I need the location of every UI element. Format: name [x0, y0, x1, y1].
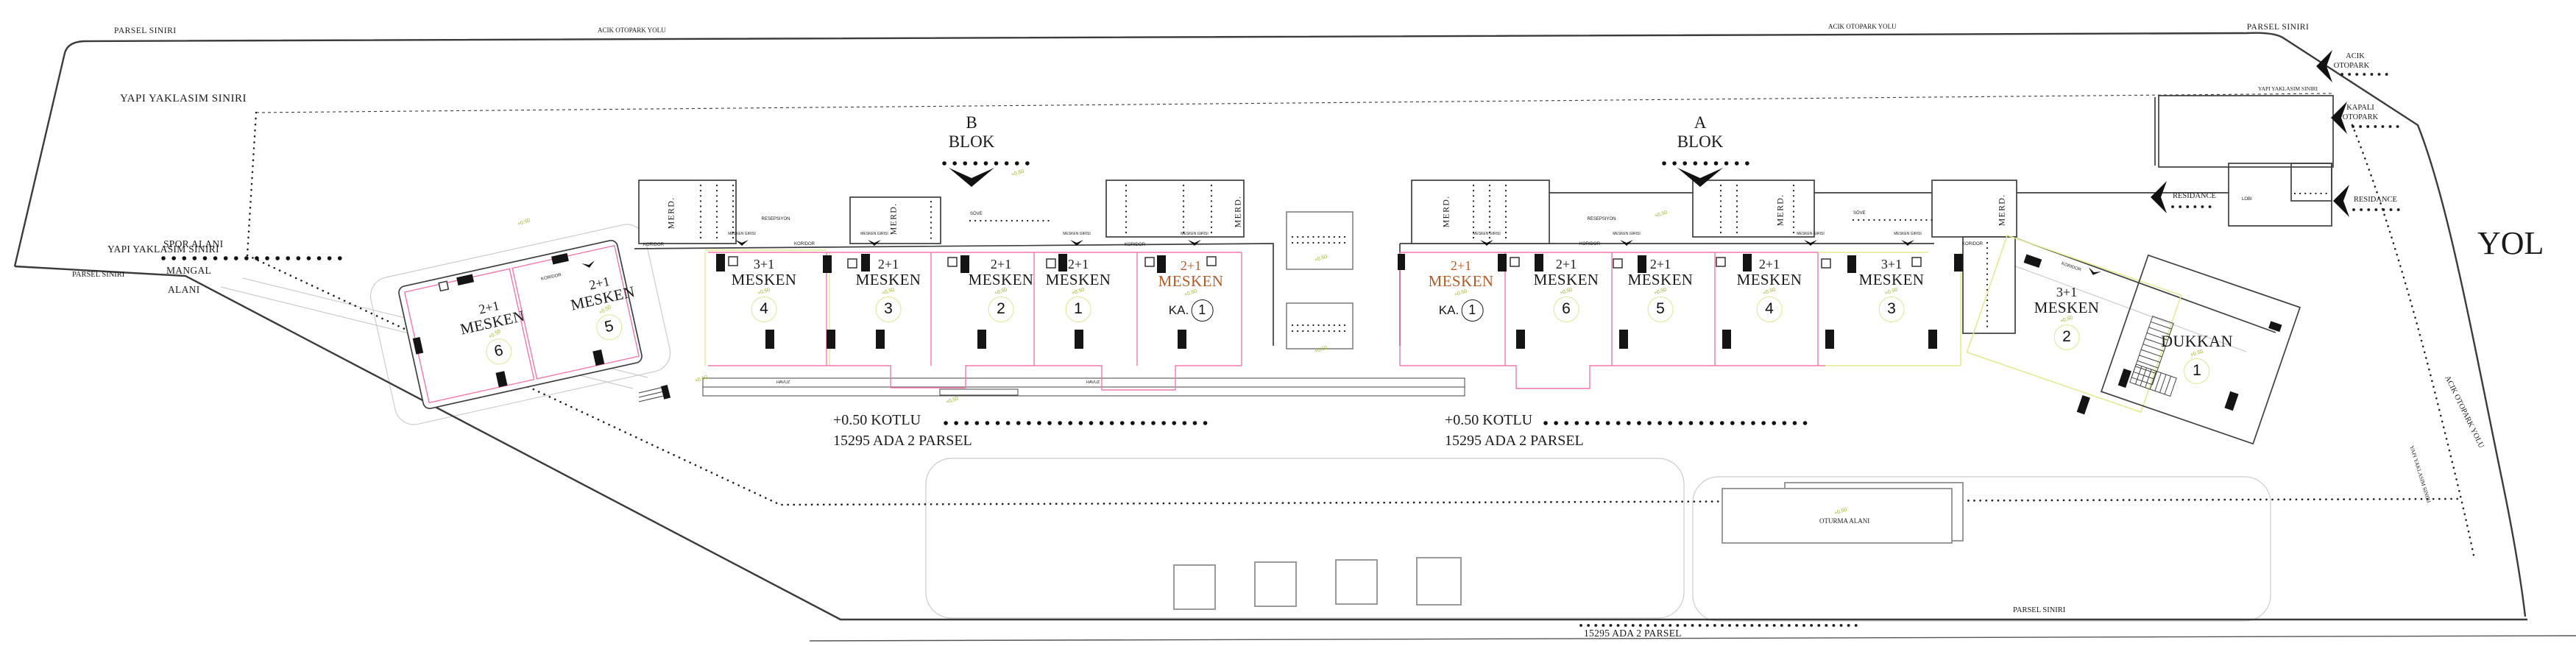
ka-prefix: KA.	[1169, 304, 1189, 317]
merd-label: MERD.	[1232, 196, 1243, 228]
kotlu-label-left: +0.50 KOTLU	[833, 412, 921, 429]
unit-number-circle: 2	[988, 297, 1014, 322]
unit-label-a2: 3+1 MESKEN +0.50 2	[2034, 285, 2100, 350]
a-blok-word: BLOK	[1677, 132, 1724, 152]
unit-type: 2+1	[856, 258, 921, 271]
resepsiyon-label: RESEPSIYON	[1587, 217, 1616, 221]
unit-number-circle: 3	[1879, 297, 1905, 322]
merd-label: MERD.	[665, 197, 676, 230]
unit-label-a5: 2+1 MESKEN +0.50 5	[1628, 258, 1694, 322]
unit-label-a4: 2+1 MESKEN +0.50 4	[1737, 258, 1802, 322]
unit-label-b2: 2+1 MESKEN +0.50 2	[969, 258, 1034, 322]
ka-prefix: KA.	[1439, 304, 1459, 317]
koridor-label: KORIDOR	[643, 243, 664, 247]
residance-label-right: RESIDANCE	[2354, 196, 2397, 204]
unit-type: 2+1	[969, 258, 1034, 271]
parsel-siniri-bottom-right: PARSEL SINIRI	[2013, 606, 2065, 614]
merd-label: MERD.	[888, 203, 899, 235]
acik-otopark-yolu-top-right: ACIK OTOPARK YOLU	[1828, 23, 1897, 30]
ada-parsel-label-right: 15295 ADA 2 PARSEL	[1445, 433, 1584, 450]
entrance-label: MESKEN GIRISI	[1063, 232, 1091, 236]
kapali-otopark-label-2: OTOPARK	[2343, 113, 2378, 121]
acik-otopark-label-1: ACIK	[2346, 52, 2365, 60]
court-planters	[1287, 212, 1353, 349]
spor-alani-label: SPOR ALANI	[163, 238, 223, 250]
unit-number-circle: 3	[876, 297, 902, 322]
merd-label: MERD.	[1440, 196, 1451, 228]
residance-label-left: RESIDANCE	[2173, 192, 2216, 200]
sove-label: SÖVE	[1853, 211, 1866, 216]
unit-number-circle: 2	[2054, 324, 2080, 350]
oturma-alani-label: OTURMA ALANI	[1819, 517, 1869, 525]
unit-label-a-ka1: 2+1 MESKEN +0.50 KA. 1	[1429, 259, 1494, 322]
top-right-buildings	[2155, 96, 2333, 226]
unit-label-b4: 3+1 MESKEN +0.50 4	[732, 258, 797, 322]
lobi-label: LOBI	[2242, 197, 2252, 202]
parsel-siniri-top-right: PARSEL SINIRI	[2247, 23, 2310, 32]
entrance-label: MESKEN GIRISI	[728, 232, 756, 236]
ada-parsel-label-bottom: 15295 ADA 2 PARSEL	[1584, 628, 1682, 639]
entrance-label: MESKEN GIRISI	[1613, 232, 1641, 236]
entrance-label: MESKEN GIRISI	[1181, 232, 1209, 236]
resepsiyon-label: RESEPSIYON	[761, 217, 790, 221]
unit-type: 3+1	[2034, 285, 2100, 299]
entrance-label: MESKEN GIRISI	[1473, 232, 1501, 236]
parsel-siniri-bottom-left: PARSEL SINIRI	[72, 271, 124, 279]
unit-number-circle: 1	[1191, 299, 1213, 322]
yapi-yaklasim-top-left: YAPI YAKLASIM SINIRI	[120, 93, 247, 105]
unit-label-a3: 3+1 MESKEN +0.50 3	[1859, 258, 1925, 322]
unit-number-circle: 6	[1554, 297, 1579, 322]
koridor-label: KORIDOR	[1579, 242, 1600, 246]
unit-number-circle: 1	[1066, 297, 1091, 322]
unit-type: 2+1	[1046, 258, 1111, 271]
a-blok-outline	[1400, 180, 2276, 346]
unit-type: 2+1	[1158, 259, 1224, 273]
ada-parsel-label-left: 15295 ADA 2 PARSEL	[833, 433, 972, 450]
yol-label: YOL	[2477, 224, 2544, 262]
unit-label-b6: 2+1 MESKEN +0.50 6	[456, 294, 534, 371]
koridor-label: KORIDOR	[1125, 243, 1145, 247]
entrance-label: MESKEN GIRISI	[1894, 232, 1922, 236]
unit-label-a6: 2+1 MESKEN +0.50 6	[1534, 258, 1599, 322]
unit-number-circle: 4	[751, 297, 777, 322]
entrance-label: MESKEN GIRISI	[860, 232, 888, 236]
site-plan-canvas: PARSEL SINIRI PARSEL SINIRI PARSEL SINIR…	[0, 0, 2576, 646]
unit-number-circle: 1	[1461, 299, 1483, 322]
unit-type: 3+1	[732, 258, 797, 271]
entrance-label: MESKEN GIRISI	[1797, 232, 1825, 236]
b-blok-word: BLOK	[949, 132, 995, 152]
unit-type: 2+1	[1534, 258, 1599, 271]
acik-otopark-yolu-top-left: ACIK OTOPARK YOLU	[598, 26, 666, 34]
unit-label-b-ka1: 2+1 MESKEN +0.50 KA. 1	[1158, 259, 1224, 322]
unit-number-circle: 4	[1757, 297, 1783, 322]
sove-label: SÖVE	[970, 212, 983, 216]
unit-type: 3+1	[1859, 258, 1925, 271]
site-plan-drawing	[0, 0, 2576, 646]
unit-type: 2+1	[1628, 258, 1694, 271]
b-blok-letter: B	[966, 113, 977, 132]
a-blok-letter: A	[1694, 113, 1707, 132]
bottom-planters	[1174, 558, 1461, 609]
havuz-label-2: HAVUZ	[1086, 380, 1100, 385]
unit-type: 2+1	[1737, 258, 1802, 271]
merd-label: MERD.	[1996, 194, 2007, 227]
dukkan-number-circle: 1	[2184, 358, 2209, 384]
mangal-label-1: MANGAL	[166, 265, 211, 277]
koridor-label: KORIDOR	[1962, 242, 1983, 246]
parsel-siniri-top-left: PARSEL SINIRI	[114, 26, 177, 35]
unit-label-b5: 2+1 MESKEN +0.50 5	[566, 269, 644, 347]
merd-label: MERD.	[1774, 194, 1786, 227]
unit-label-b3: 2+1 MESKEN +0.50 3	[856, 258, 921, 322]
koridor-label: KORIDOR	[794, 242, 815, 246]
acik-otopark-label-2: OTOPARK	[2334, 62, 2369, 70]
yapi-yaklasim-top-right-small: YAPI YAKLASIM SINIRI	[2258, 85, 2318, 92]
mangal-label-2: ALANI	[168, 284, 200, 296]
havuz-label-1: HAVUZ	[776, 380, 790, 385]
blok-arrows	[944, 163, 1749, 187]
kotlu-label-right: +0.50 KOTLU	[1445, 412, 1532, 429]
unit-number-circle: 5	[1648, 297, 1674, 322]
unit-type: 2+1	[1429, 259, 1494, 273]
unit-label-b1: 2+1 MESKEN +0.50 1	[1046, 258, 1111, 322]
dukkan-label: DUKKAN +0.50 1	[2161, 333, 2233, 384]
kapali-otopark-label-1: KAPALI	[2346, 104, 2374, 112]
pool-outline	[639, 378, 1465, 402]
